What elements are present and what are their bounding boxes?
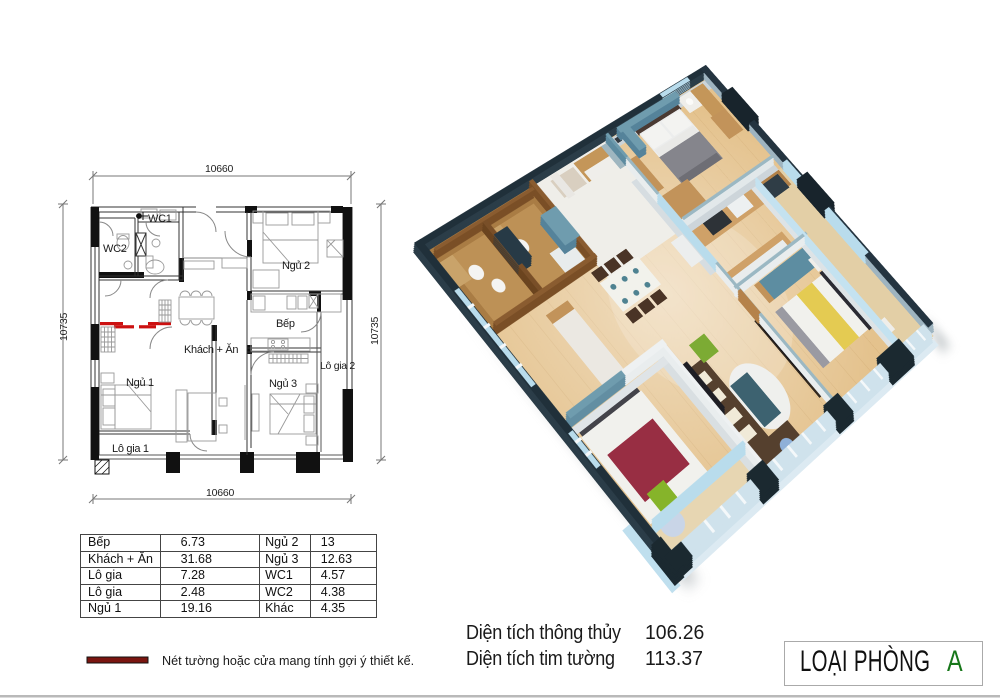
svg-text:Lô gia 2: Lô gia 2: [320, 360, 355, 372]
svg-text:10735: 10735: [58, 312, 70, 341]
svg-text:10735: 10735: [369, 316, 381, 345]
svg-text:Ngủ 1: Ngủ 1: [126, 377, 154, 389]
svg-text:WC2: WC2: [103, 243, 127, 255]
svg-text:Ngủ 3: Ngủ 3: [269, 378, 297, 390]
svg-text:Khách + Ăn: Khách + Ăn: [184, 343, 238, 356]
svg-text:WC1: WC1: [148, 213, 172, 225]
svg-text:Ngủ 2: Ngủ 2: [282, 260, 310, 272]
svg-text:10660: 10660: [205, 163, 234, 175]
svg-text:10660: 10660: [206, 487, 235, 499]
svg-text:Lô gia 1: Lô gia 1: [112, 443, 149, 455]
svg-text:Bếp: Bếp: [276, 318, 295, 330]
